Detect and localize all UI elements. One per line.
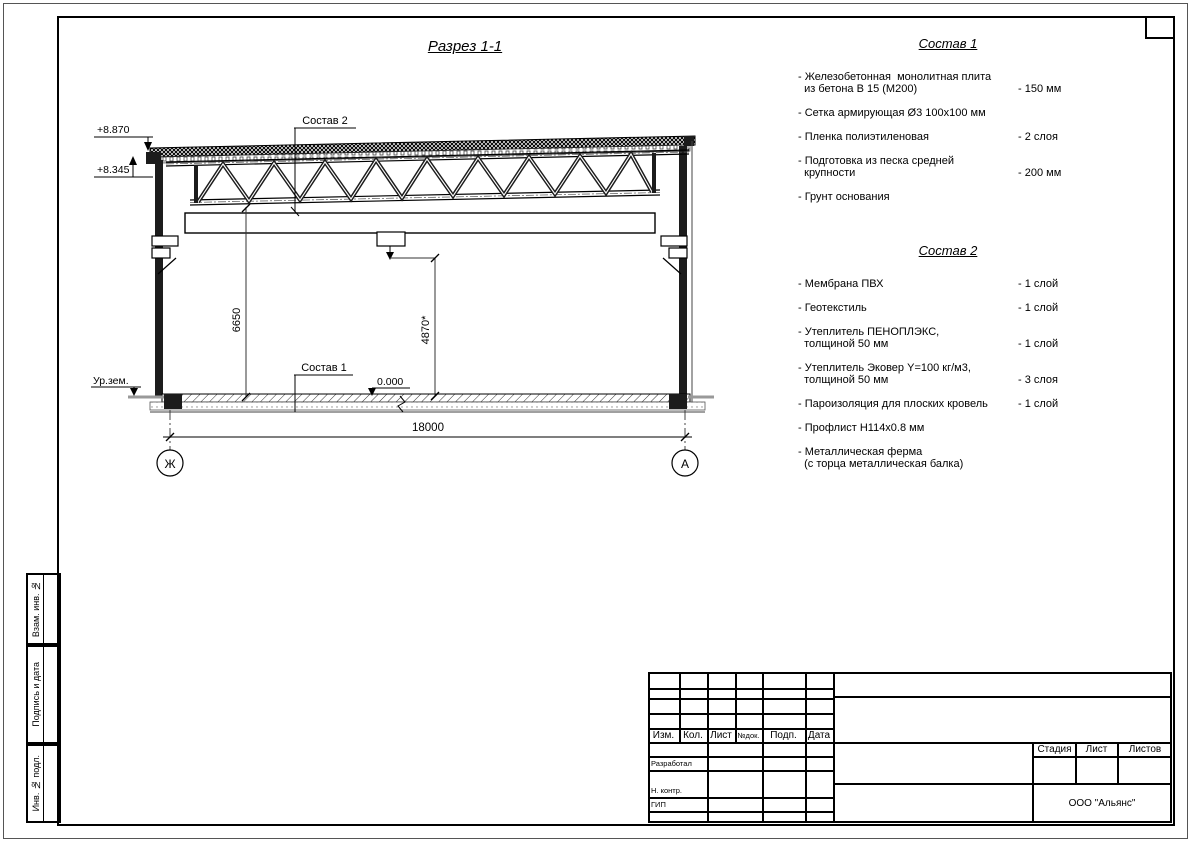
title-block: Изм. Кол. Лист №док. Подп. Дата Разработ… — [648, 672, 1172, 823]
stamp-cell-inv: Инв. № подл. — [26, 744, 61, 823]
elevation-marks: +8.870 +8.345 — [94, 124, 153, 177]
tb-role-nkontr: Н. контр. — [648, 783, 710, 797]
list-item: - Мембрана ПВХ - 1 слой — [798, 278, 1098, 290]
list-item: - Подготовка из песка средней крупности … — [798, 155, 1098, 179]
list-item: - Грунт основания — [798, 191, 1098, 203]
zero-level-label: 0.000 — [377, 376, 403, 388]
stamp-label-vzam: Взам. инв. № — [31, 581, 41, 637]
axis-left-label: Ж — [164, 457, 175, 471]
dimension-6650-label: 6650 — [231, 308, 243, 332]
tb-sheets-label: Листов — [1118, 742, 1172, 756]
list-item: - Утеплитель ПЕНОПЛЭКС, толщиной 50 мм -… — [798, 326, 1098, 350]
stamp-cell-podpis: Подпись и дата — [26, 645, 61, 744]
tb-organization: ООО "Альянс" — [1032, 783, 1172, 823]
list-item: - Геотекстиль - 1 слой — [798, 302, 1098, 314]
leader-roof-label: Состав 2 — [302, 115, 348, 127]
sostav1-list: Состав 1 - Железобетонная монолитная пли… — [798, 38, 1098, 215]
leader-floor-label: Состав 1 — [301, 362, 347, 374]
tb-col-kol: Кол. — [679, 728, 707, 742]
top-right-stamp-box — [1145, 18, 1175, 39]
list-item: - Пленка полиэтиленовая - 2 слоя — [798, 131, 1098, 143]
svg-text:4870*: 4870* — [420, 315, 432, 344]
sostav2-list: Состав 2 - Мембрана ПВХ - 1 слой - Геоте… — [798, 245, 1098, 482]
elevation-label-top: +8.870 — [97, 124, 130, 136]
dimension-18000: 18000 Ж А — [157, 410, 698, 476]
tb-col-ndok: №док. — [735, 728, 762, 742]
sostav2-title: Состав 2 — [798, 245, 1098, 257]
list-item: - Металлическая ферма (с торца металличе… — [798, 446, 1098, 470]
list-item: - Утеплитель Эковер Y=100 кг/м3, толщино… — [798, 362, 1098, 386]
tb-role-gip: ГИП — [648, 797, 710, 811]
tb-col-data: Дата — [805, 728, 833, 742]
section-drawing: +8.870 +8.345 Состав 2 Состав 1 0.000 — [0, 0, 780, 520]
stamp-label-podpis: Подпись и дата — [31, 662, 41, 727]
tb-sheet-label: Лист — [1076, 742, 1117, 756]
tb-role-razrabotal: Разработал — [648, 756, 710, 770]
ground-level-label: Ур.зем. — [93, 375, 129, 387]
tb-stage-label: Стадия — [1034, 742, 1075, 756]
axis-right-label: А — [681, 457, 689, 471]
stamp-cell-vzam: Взам. инв. № — [26, 573, 61, 645]
floor-slab — [128, 394, 714, 412]
ground-level-mark: Ур.зем. — [91, 375, 141, 396]
list-item: - Сетка армирующая Ø3 100х100 мм — [798, 107, 1098, 119]
elevation-label-low: +8.345 — [97, 164, 130, 176]
list-item: - Пароизоляция для плоских кровель - 1 с… — [798, 398, 1098, 410]
stamp-label-inv: Инв. № подл. — [31, 755, 41, 811]
tb-col-izm: Изм. — [648, 728, 679, 742]
stamp-cell-podpis-empty — [43, 647, 59, 742]
dimension-18000-label: 18000 — [412, 422, 444, 434]
tb-col-list: Лист — [707, 728, 735, 742]
stamp-cell-inv-empty — [43, 746, 59, 821]
stamp-cell-vzam-empty — [43, 575, 59, 643]
beam — [152, 213, 687, 274]
tb-col-podp: Подп. — [762, 728, 805, 742]
sostav1-title: Состав 1 — [798, 38, 1098, 50]
drawing-sheet: Взам. инв. № Подпись и дата Инв. № подл.… — [0, 0, 1191, 842]
zero-level-mark: 0.000 — [368, 376, 410, 396]
list-item: - Железобетонная монолитная плита из бет… — [798, 71, 1098, 95]
list-item: - Профлист Н114х0.8 мм — [798, 422, 1098, 434]
